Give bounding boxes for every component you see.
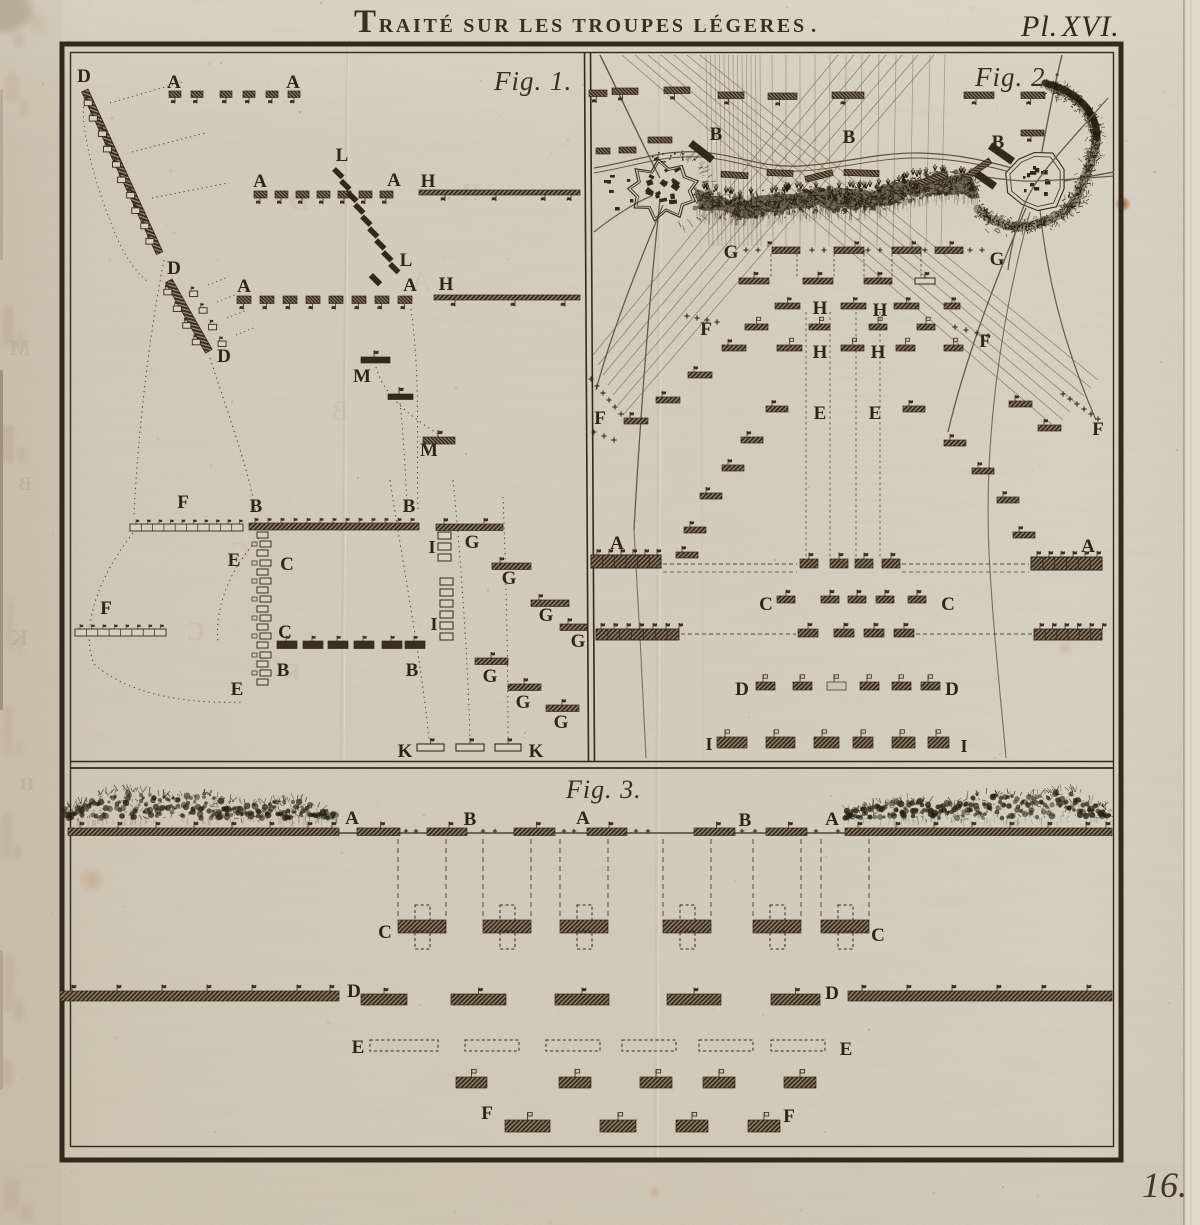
svg-text:H: H bbox=[871, 342, 886, 363]
svg-text:E: E bbox=[840, 1039, 853, 1060]
svg-text:A: A bbox=[345, 808, 359, 829]
svg-text:B: B bbox=[710, 124, 723, 145]
svg-text:G: G bbox=[502, 568, 517, 589]
svg-text:F: F bbox=[1092, 419, 1104, 440]
svg-text:E: E bbox=[352, 1037, 365, 1058]
svg-text:F: F bbox=[783, 1106, 795, 1127]
svg-text:D: D bbox=[945, 679, 959, 700]
svg-text:A: A bbox=[167, 72, 181, 93]
svg-text:M: M bbox=[420, 440, 438, 461]
svg-text:A: A bbox=[253, 171, 267, 192]
svg-text:F: F bbox=[100, 598, 112, 619]
svg-text:B: B bbox=[843, 127, 856, 148]
svg-text:G: G bbox=[465, 532, 480, 553]
svg-text:C: C bbox=[871, 925, 885, 946]
svg-text:G: G bbox=[571, 631, 586, 652]
svg-text:B: B bbox=[19, 473, 32, 495]
svg-text:G: G bbox=[483, 666, 498, 687]
svg-text:E: E bbox=[814, 403, 827, 424]
svg-text:I: I bbox=[960, 736, 967, 756]
svg-text:H: H bbox=[439, 274, 454, 295]
svg-text:E: E bbox=[231, 679, 244, 700]
svg-text:G: G bbox=[516, 692, 531, 713]
svg-text:D: D bbox=[167, 258, 181, 279]
svg-text:D: D bbox=[735, 679, 749, 700]
svg-text:L: L bbox=[336, 145, 349, 166]
svg-text:Fig. 1.: Fig. 1. bbox=[493, 66, 572, 96]
svg-text:A: A bbox=[825, 809, 839, 830]
svg-text:A: A bbox=[403, 275, 417, 296]
svg-text:B: B bbox=[250, 496, 263, 517]
svg-text:Fig. 3.: Fig. 3. bbox=[565, 775, 642, 804]
svg-text:C: C bbox=[759, 594, 773, 615]
svg-text:L: L bbox=[400, 250, 413, 271]
svg-text:C: C bbox=[280, 554, 294, 575]
svg-text:A: A bbox=[286, 72, 300, 93]
svg-text:B: B bbox=[464, 809, 477, 830]
svg-text:D: D bbox=[347, 981, 361, 1002]
svg-text:M: M bbox=[9, 335, 30, 360]
svg-text:Pl. XVI.: Pl. XVI. bbox=[1020, 10, 1120, 43]
svg-text:B: B bbox=[739, 810, 752, 831]
svg-text:A: A bbox=[237, 276, 251, 297]
svg-text:F: F bbox=[481, 1103, 493, 1124]
svg-text:B: B bbox=[331, 396, 350, 427]
svg-text:G: G bbox=[724, 242, 739, 263]
svg-text:E: E bbox=[228, 550, 241, 571]
svg-text:H: H bbox=[20, 774, 34, 794]
svg-text:I: I bbox=[428, 537, 435, 557]
svg-text:G: G bbox=[539, 605, 554, 626]
svg-text:K: K bbox=[398, 741, 413, 762]
svg-text:H: H bbox=[421, 171, 436, 192]
svg-text:C: C bbox=[378, 922, 392, 943]
svg-text:K: K bbox=[11, 625, 28, 650]
svg-text:D: D bbox=[217, 346, 231, 367]
svg-text:D: D bbox=[288, 184, 310, 217]
svg-text:H: H bbox=[813, 342, 828, 363]
svg-text:I: I bbox=[705, 734, 712, 754]
svg-text:C: C bbox=[941, 594, 955, 615]
svg-text:K: K bbox=[529, 741, 544, 762]
svg-text:I: I bbox=[430, 614, 437, 634]
svg-text:E: E bbox=[869, 403, 882, 424]
svg-text:G: G bbox=[990, 249, 1005, 270]
svg-text:H: H bbox=[813, 298, 828, 319]
svg-text:C: C bbox=[278, 622, 292, 643]
svg-text:A: A bbox=[576, 808, 590, 829]
svg-text:M: M bbox=[353, 366, 371, 387]
svg-text:B: B bbox=[403, 496, 416, 517]
svg-text:C: C bbox=[186, 617, 205, 646]
svg-text:F: F bbox=[594, 408, 606, 429]
svg-text:D: D bbox=[77, 66, 91, 87]
svg-text:F: F bbox=[700, 319, 712, 340]
svg-text:F: F bbox=[177, 492, 189, 513]
svg-text:B: B bbox=[406, 660, 419, 681]
svg-text:16.: 16. bbox=[1142, 1165, 1187, 1205]
svg-text:D: D bbox=[825, 983, 839, 1004]
svg-text:B: B bbox=[277, 660, 290, 681]
svg-text:F: F bbox=[979, 331, 991, 352]
svg-text:G: G bbox=[554, 712, 569, 733]
svg-text:A: A bbox=[387, 170, 401, 191]
